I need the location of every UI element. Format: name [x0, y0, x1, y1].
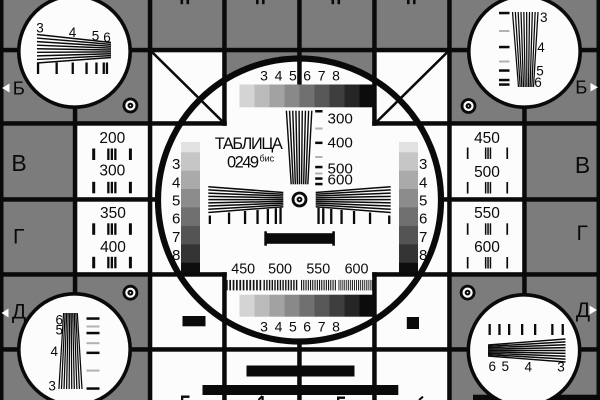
svg-text:6: 6 — [488, 359, 496, 374]
svg-text:350: 350 — [100, 205, 126, 222]
svg-text:4: 4 — [172, 174, 180, 191]
svg-text:бис: бис — [260, 154, 275, 164]
svg-text:В: В — [575, 152, 590, 178]
svg-text:3: 3 — [419, 156, 427, 173]
svg-text:4: 4 — [537, 40, 545, 55]
svg-text:4: 4 — [69, 25, 77, 40]
svg-text:Д: Д — [576, 299, 590, 322]
svg-text:ТАБЛИЦА: ТАБЛИЦА — [215, 135, 283, 153]
svg-text:500: 500 — [474, 164, 500, 181]
svg-text:В: В — [11, 150, 26, 176]
svg-text:300: 300 — [328, 110, 353, 127]
svg-text:600: 600 — [345, 261, 369, 277]
svg-text:400: 400 — [100, 239, 126, 256]
svg-text:5: 5 — [92, 28, 100, 43]
svg-text:Г: Г — [577, 222, 588, 245]
svg-text:Б: Б — [575, 77, 587, 98]
svg-text:7: 7 — [318, 67, 326, 83]
svg-text:6: 6 — [303, 318, 311, 334]
svg-text:5: 5 — [419, 193, 427, 210]
svg-text:600: 600 — [328, 172, 353, 189]
svg-text:3: 3 — [48, 379, 56, 394]
svg-text:8: 8 — [172, 247, 180, 264]
svg-text:400: 400 — [328, 134, 353, 151]
svg-text:6: 6 — [172, 211, 180, 228]
svg-text:300: 300 — [99, 163, 125, 180]
svg-text:0249: 0249 — [227, 154, 259, 172]
svg-text:3: 3 — [260, 67, 268, 83]
svg-text:550: 550 — [474, 205, 500, 222]
svg-text:450: 450 — [231, 261, 255, 277]
svg-text:4: 4 — [419, 174, 427, 191]
svg-text:6: 6 — [534, 75, 542, 90]
svg-text:200: 200 — [99, 130, 125, 147]
svg-text:8: 8 — [332, 67, 340, 83]
svg-text:500: 500 — [268, 261, 292, 277]
svg-text:550: 550 — [306, 261, 330, 277]
svg-text:5: 5 — [289, 67, 297, 83]
svg-text:Г: Г — [13, 226, 24, 249]
svg-text:8: 8 — [419, 247, 427, 264]
svg-text:3: 3 — [260, 318, 268, 334]
svg-text:600: 600 — [474, 239, 500, 256]
svg-text:7: 7 — [318, 318, 326, 334]
svg-text:7: 7 — [419, 229, 427, 246]
svg-text:3: 3 — [540, 10, 548, 25]
svg-text:5: 5 — [289, 318, 297, 334]
svg-text:6: 6 — [303, 67, 311, 83]
svg-text:Б: Б — [13, 78, 25, 99]
svg-text:5: 5 — [501, 359, 509, 374]
svg-text:8: 8 — [332, 318, 340, 334]
svg-text:4: 4 — [524, 360, 532, 375]
svg-text:4: 4 — [50, 344, 58, 359]
svg-text:450: 450 — [474, 130, 500, 147]
svg-text:4: 4 — [275, 318, 283, 334]
svg-text:6: 6 — [419, 211, 427, 228]
svg-text:3: 3 — [557, 360, 565, 375]
svg-text:3: 3 — [172, 156, 180, 173]
svg-text:Д: Д — [12, 300, 26, 323]
svg-text:5: 5 — [55, 323, 63, 338]
svg-text:4: 4 — [275, 67, 283, 83]
svg-text:7: 7 — [172, 229, 180, 246]
svg-text:6: 6 — [103, 30, 111, 45]
svg-text:5: 5 — [172, 193, 180, 210]
svg-text:3: 3 — [36, 21, 44, 36]
